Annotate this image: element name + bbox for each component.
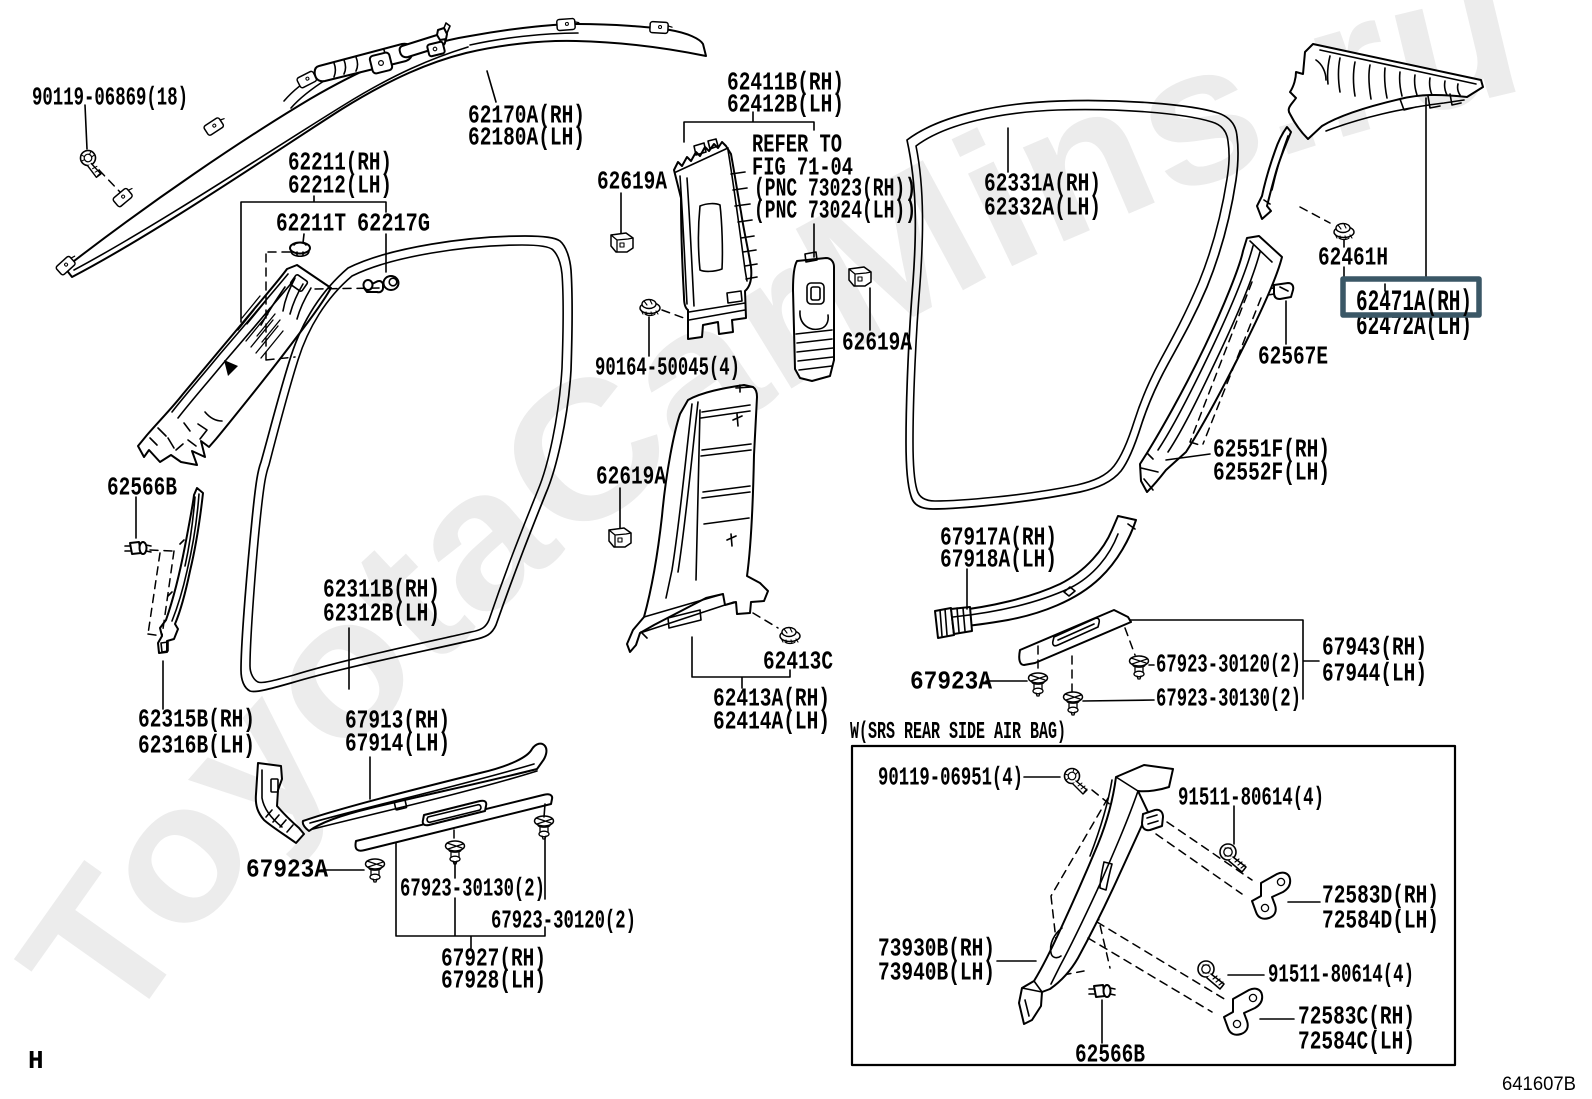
svg-text:62619A: 62619A — [596, 462, 666, 492]
svg-text:62211T: 62211T — [276, 209, 346, 239]
svg-text:62412B(LH): 62412B(LH) — [727, 90, 844, 120]
svg-text:62217G: 62217G — [357, 209, 430, 239]
svg-text:(PNC 73024(LH)): (PNC 73024(LH)) — [754, 196, 916, 226]
svg-text:62567E: 62567E — [1258, 342, 1328, 372]
svg-text:62312B(LH): 62312B(LH) — [323, 599, 440, 629]
svg-text:62552F(LH): 62552F(LH) — [1213, 458, 1330, 488]
svg-text:67923-30130(2): 67923-30130(2) — [1156, 684, 1301, 714]
svg-text:67923-30130(2): 67923-30130(2) — [400, 874, 545, 904]
svg-text:62461H: 62461H — [1318, 243, 1388, 273]
svg-text:62413C: 62413C — [763, 647, 833, 677]
svg-text:62316B(LH): 62316B(LH) — [138, 731, 255, 761]
svg-text:62180A(LH): 62180A(LH) — [468, 123, 585, 153]
svg-text:67944(LH): 67944(LH) — [1322, 659, 1427, 689]
svg-text:62212(LH): 62212(LH) — [288, 171, 392, 201]
svg-text:91511-80614(4): 91511-80614(4) — [1178, 783, 1324, 813]
svg-text:67918A(LH): 67918A(LH) — [940, 545, 1057, 575]
svg-text:62414A(LH): 62414A(LH) — [713, 707, 830, 737]
svg-text:73940B(LH): 73940B(LH) — [878, 958, 995, 988]
svg-text:62619A: 62619A — [597, 167, 667, 197]
svg-text:90119-06869(18): 90119-06869(18) — [32, 83, 188, 113]
svg-text:67923-30120(2): 67923-30120(2) — [491, 906, 636, 936]
svg-text:90164-50045(4): 90164-50045(4) — [595, 353, 740, 383]
svg-text:67914(LH): 67914(LH) — [345, 729, 450, 759]
svg-text:90119-06951(4): 90119-06951(4) — [878, 763, 1023, 793]
svg-text:67923A: 67923A — [910, 667, 992, 697]
svg-text:72584C(LH): 72584C(LH) — [1298, 1027, 1415, 1057]
svg-text:62332A(LH): 62332A(LH) — [984, 193, 1101, 223]
svg-text:W(SRS REAR SIDE AIR BAG): W(SRS REAR SIDE AIR BAG) — [850, 719, 1066, 746]
svg-text:67923A: 67923A — [246, 855, 328, 885]
svg-text:62619A: 62619A — [842, 328, 912, 358]
svg-text:67928(LH): 67928(LH) — [441, 966, 546, 996]
svg-text:62566B: 62566B — [107, 473, 177, 503]
svg-text:H: H — [28, 1046, 44, 1076]
svg-text:91511-80614(4): 91511-80614(4) — [1268, 960, 1414, 990]
svg-text:62566B: 62566B — [1075, 1040, 1145, 1070]
svg-text:62471A(RH): 62471A(RH) — [1356, 286, 1472, 320]
svg-text:67923-30120(2): 67923-30120(2) — [1156, 650, 1301, 680]
svg-text:641607B: 641607B — [1502, 1073, 1576, 1095]
svg-text:72584D(LH): 72584D(LH) — [1322, 906, 1439, 936]
